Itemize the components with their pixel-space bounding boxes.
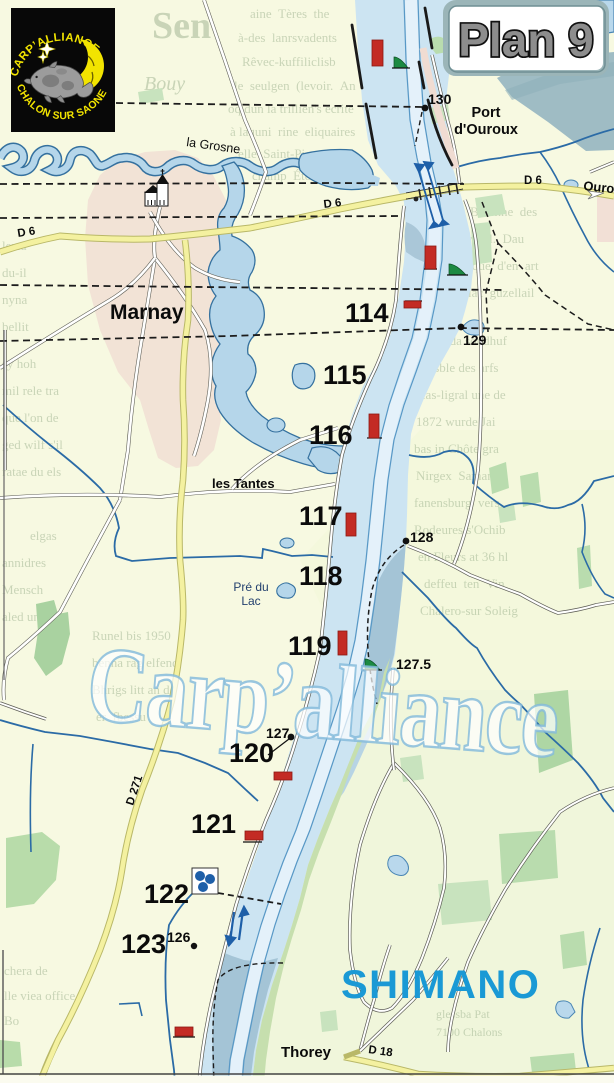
svg-text:Plan 9: Plan 9 <box>458 14 594 66</box>
